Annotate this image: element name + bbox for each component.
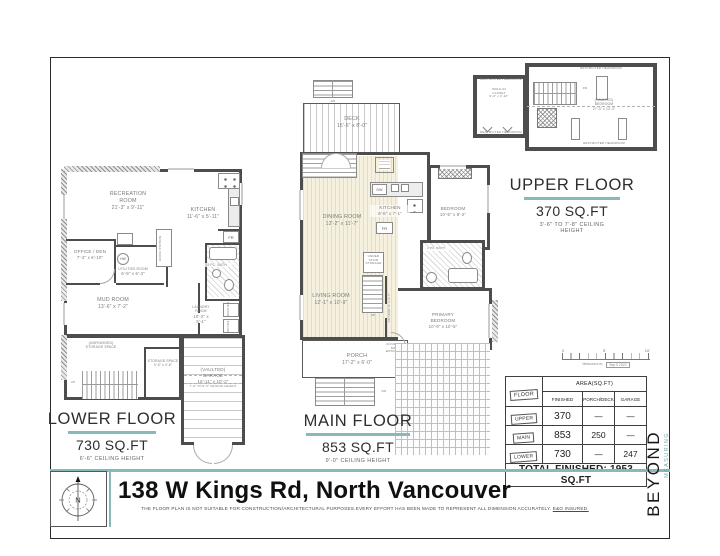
window	[485, 185, 491, 213]
room-dim: 12'-2" x 11'-7"	[312, 221, 372, 228]
fridge-label: FR	[228, 235, 233, 240]
room-dim: 13'-6" x 7'-2"	[72, 304, 154, 311]
closet	[438, 168, 472, 179]
room-label-bath: 4 PC. BATH	[202, 263, 232, 267]
room-name: DINING ROOM	[312, 214, 372, 221]
room-name: FOYER	[387, 311, 391, 322]
stairs	[82, 371, 138, 399]
finished-value: 853	[543, 426, 583, 445]
room-name: LAUNDRY ROOM	[188, 305, 214, 314]
door-swing	[214, 445, 233, 464]
wall	[198, 323, 200, 337]
floor-title-text: UPPER FLOOR	[492, 176, 652, 195]
measured-on-label: Measured on:	[582, 362, 603, 368]
room-name: PRIMARY BEDROOM	[422, 312, 464, 324]
porch-deck-header: PORCH/DECK	[583, 392, 615, 407]
scale-bar: 0 5' 10' Measured on: Sep 5 2023	[562, 348, 650, 368]
area-header-label: AREA(SQ.FT)	[576, 381, 613, 387]
label-text: DN	[583, 86, 588, 90]
room-dim: 8'-6" x 7'-1"	[370, 211, 410, 217]
brand-tagline-vertical: MEASURING	[664, 432, 670, 478]
label-text: DN	[331, 99, 336, 103]
room-label-recreation: RECREATION ROOM21'-3" x 9'-11"	[102, 191, 154, 212]
address-text: 138 W Kings Rd, North Vancouver	[118, 477, 511, 504]
wall	[144, 347, 180, 349]
toilet	[224, 279, 234, 291]
counter-appliance	[401, 184, 409, 192]
room-label-utilities: UTILITIES ROOM6'-9" x 6'-3"	[104, 267, 162, 277]
upper-annex-block	[473, 75, 527, 138]
room-label-garage: (VAULTED) GARAGE16'-11" x 10'-2"7'-0" TO…	[184, 367, 242, 388]
dishwasher-box: DW	[372, 184, 387, 195]
label-text: DN	[382, 389, 387, 393]
table-row: MAIN 853 250 —	[506, 426, 647, 445]
label-text: RESTRICTED HEADROOM	[480, 130, 522, 134]
stove-burners-icon	[218, 173, 240, 189]
garage-value: —	[615, 426, 647, 445]
porch-value: —	[583, 407, 615, 426]
restricted-headroom-label: RESTRICTED HEADROOM	[478, 131, 524, 135]
room-dim: 12'-1" x 10'-9"	[301, 300, 361, 307]
wall	[66, 239, 116, 241]
toilet	[462, 252, 472, 264]
room-dim: 27'-3" x 13'-3"	[574, 107, 634, 111]
restricted-headroom-label: RESTRICTED HEADROOM	[570, 67, 632, 71]
up-label: UP	[66, 381, 80, 385]
skylight	[618, 118, 627, 140]
label-text: DW	[377, 188, 383, 192]
title-underline	[524, 197, 620, 200]
label-text: UP	[371, 313, 376, 317]
measured-on-date: Sep 5 2023	[606, 362, 629, 368]
below-grade-wall	[61, 335, 67, 380]
label-text: RESTRICTED HEADROOM	[583, 141, 625, 145]
compass-icon: N	[51, 472, 106, 526]
below-grade-wall	[64, 166, 160, 172]
floor-title-text: MAIN FLOOR	[278, 412, 438, 431]
label-text: RESTRICTED HEADROOM	[580, 66, 622, 70]
main-floor-title: MAIN FLOOR 853 SQ.FT 9'-0" CEILING HEIGH…	[278, 412, 438, 464]
floor-ceiling-text: 3'-6" TO 7'-8" CEILING HEIGHT	[536, 222, 608, 234]
bath-sink	[426, 272, 437, 283]
room-label-kitchen: KITCHEN11'-6" x 5'-11"	[172, 207, 234, 221]
floor-area-text: 853 SQ.FT	[278, 439, 438, 455]
room-dim: 10'-2" x 5'-1"	[188, 314, 214, 325]
room-name: LIVING ROOM	[301, 293, 361, 300]
dn-label: DN	[377, 390, 391, 394]
room-dim: 21'-3" x 9'-11"	[102, 205, 154, 212]
room-dim: 9'-5" x 4'-8"	[146, 363, 180, 367]
brand-name-vertical: BEYOND	[644, 430, 664, 517]
restricted-headroom-label: RESTRICTED HEADROOM	[478, 78, 524, 82]
room-dim: 9'-0" x 3'-10"	[478, 95, 520, 99]
room-dim: 7'-2" x 6'-10"	[66, 255, 114, 261]
door-swing	[193, 445, 212, 464]
work-station-label: WORK STATION	[159, 233, 169, 263]
room-label-kitchen: KITCHEN8'-6" x 7'-1"	[370, 205, 410, 217]
room-dim: 11'-6" x 5'-11"	[172, 214, 234, 221]
upper-floor-title: UPPER FLOOR 370 SQ.FT 3'-6" TO 7'-8" CEI…	[492, 176, 652, 234]
label-text: 4 PC. BATH	[207, 263, 227, 267]
fridge-box: FR	[223, 231, 239, 243]
garage-value: —	[615, 407, 647, 426]
bath-sink	[212, 269, 221, 278]
floor-ceiling-text: 9'-0" CEILING HEIGHT	[278, 458, 438, 464]
room-name: DECK	[322, 116, 382, 123]
footer-divider	[50, 469, 670, 472]
label-text: UP	[71, 380, 76, 384]
room-name: MUD ROOM	[72, 297, 154, 304]
fridge-box: FR	[376, 222, 393, 234]
room-label-understair: UNDER STAIR STORAGE	[364, 255, 383, 266]
small-closet-box	[375, 157, 394, 173]
table-row: LOWER 730 — 247	[506, 445, 647, 464]
room-dim: 10'-9" x 10'-5"	[413, 324, 473, 330]
finished-value: 730	[543, 445, 583, 464]
measured-on-row: Measured on: Sep 5 2023	[562, 362, 650, 368]
room-label-dining: DINING ROOM12'-2" x 11'-7"	[312, 214, 372, 228]
area-header-cell: AREA(SQ.FT)	[543, 377, 647, 392]
upper-floor-plan: DN RESTRICTED HEADROOM RESTRICTED HEADRO…	[470, 60, 665, 160]
closet-box	[117, 233, 133, 245]
room-label-laundry: LAUNDRY ROOM10'-2" x 5'-1"	[188, 305, 214, 324]
room-label-porch: PORCH17'-2" x 6'-0"	[325, 353, 389, 367]
col-label: PORCH/DECK	[583, 397, 614, 402]
disclaimer: THE FLOOR PLAN IS NOT SUITABLE FOR CONST…	[135, 506, 595, 511]
label-text: 4 PC. BATH	[427, 246, 445, 250]
row-label: LOWER	[510, 451, 538, 463]
dryer-label: DRYER	[227, 320, 235, 332]
wall	[116, 283, 164, 285]
skylight	[596, 76, 608, 100]
below-grade-wall	[61, 169, 67, 301]
room-label-foyer: FOYER8'-5" x 3'-7"	[388, 285, 398, 331]
room-label-living: LIVING ROOM12'-1" x 10'-9"	[301, 293, 361, 307]
room-name: PORCH	[325, 353, 389, 360]
room-dim: 15'-6" x 8'-0"	[322, 123, 382, 130]
label-text: UNDER STAIR STORAGE	[366, 255, 382, 266]
garage-floor	[184, 338, 242, 442]
hot-water-tank: HW	[117, 253, 129, 265]
footer-accent-bar	[109, 471, 112, 527]
stair-rail	[344, 378, 345, 406]
room-label-bedroom: BEDROOM10'-5" x 8'-2"	[423, 206, 483, 218]
kitchen-sink	[230, 197, 239, 206]
room-dim: 10'-5" x 8'-2"	[423, 212, 483, 218]
floor-title-text: LOWER FLOOR	[32, 410, 192, 429]
col-label: GARAGE	[621, 397, 641, 402]
window	[168, 166, 194, 172]
up-label: UP	[365, 314, 381, 318]
finished-value: 370	[543, 407, 583, 426]
floor-ceiling-text: 6'-6" CEILING HEIGHT	[32, 456, 192, 462]
room-label-storage: STORAGE SPACE9'-5" x 4'-8"	[146, 359, 180, 367]
room-note: 7'-0" TO 9'-2" CEILING HEIGHT	[184, 385, 242, 389]
compass-n-label: N	[75, 496, 80, 505]
porch-stairs	[315, 378, 375, 406]
floor-area-text: 730 SQ.FT	[32, 437, 192, 453]
window	[297, 295, 303, 320]
floor-header-cell: FLOOR	[506, 377, 543, 407]
room-label-main-bath: 4 PC. BATH	[423, 247, 449, 251]
stair-rail	[82, 384, 138, 385]
stairs	[362, 275, 383, 313]
chimney	[537, 108, 557, 128]
window	[486, 304, 492, 338]
title-underline	[68, 431, 156, 434]
washer-label: WASHER	[227, 304, 235, 316]
title-underline	[306, 433, 410, 436]
label-text: (UNFINISHED) STORAGE SPACE	[84, 341, 118, 350]
row-label: MAIN	[513, 432, 535, 443]
finished-header: FINISHED	[543, 392, 583, 407]
floor-header-label: FLOOR	[510, 389, 539, 401]
row-label-cell: MAIN	[506, 426, 543, 445]
col-label: FINISHED	[552, 397, 573, 402]
window	[61, 195, 67, 219]
window	[440, 163, 466, 169]
disclaimer-underlined-text: E&O INSURED.	[553, 506, 589, 511]
skylight	[571, 118, 580, 140]
room-name: (VAULTED) BEDROOM	[588, 98, 620, 107]
wall	[66, 283, 100, 285]
room-name: KITCHEN	[172, 207, 234, 214]
room-name: RECREATION ROOM	[102, 191, 154, 205]
garage-header: GARAGE	[615, 392, 647, 407]
room-label-walkin-closet: WALK-IN CLOSET9'-0" x 3'-10"	[478, 88, 520, 99]
bay-window	[492, 300, 498, 342]
room-label-mud: MUD ROOM13'-6" x 7'-2"	[72, 297, 154, 311]
lower-floor-title: LOWER FLOOR 730 SQ.FT 6'-6" CEILING HEIG…	[32, 410, 192, 462]
room-dim: 8'-5" x 3'-7"	[387, 294, 391, 312]
label-text: FR	[382, 226, 387, 231]
label-text: WASHER	[226, 302, 230, 316]
stair-rail	[533, 93, 577, 94]
address-title: 138 W Kings Rd, North Vancouver	[118, 477, 511, 505]
counter-appliance	[391, 184, 399, 192]
room-label-deck: DECK15'-6" x 8'-0"	[322, 116, 382, 130]
label-text: DRYER	[226, 320, 230, 332]
window	[61, 303, 67, 325]
wall	[144, 347, 146, 400]
brand-logo: BEYOND MEASURING	[644, 430, 670, 536]
total-finished-label: TOTAL FINISHED: 1953 SQ.FT	[519, 464, 633, 486]
row-label-cell: LOWER	[506, 445, 543, 464]
garage-value: 247	[615, 445, 647, 464]
table-row: UPPER 370 — —	[506, 407, 647, 426]
room-dim: 6'-9" x 6'-3"	[104, 271, 162, 276]
total-finished-cell: TOTAL FINISHED: 1953 SQ.FT	[506, 464, 647, 487]
dn-label: DN	[578, 87, 592, 91]
room-label-vaulted-bedroom: (VAULTED) BEDROOM27'-3" x 13'-3"	[574, 98, 634, 111]
room-name: (VAULTED) GARAGE	[196, 367, 230, 379]
label-text: HW	[120, 257, 126, 261]
compass-box: N	[50, 471, 107, 527]
room-dim: 17'-2" x 6'-0"	[325, 360, 389, 367]
scale-ruler	[562, 353, 650, 360]
stair-rail	[332, 80, 333, 98]
window	[297, 190, 303, 220]
room-label-unfinished-storage: (UNFINISHED) STORAGE SPACE	[70, 341, 132, 350]
wall	[205, 299, 240, 301]
porch-value: —	[583, 445, 615, 464]
deck-stairs	[313, 80, 353, 98]
floor-area-text: 370 SQ.FT	[492, 203, 652, 219]
label-text: RESTRICTED HEADROOM	[480, 77, 522, 81]
row-label-cell: UPPER	[506, 407, 543, 426]
room-label-primary: PRIMARY BEDROOM10'-9" x 10'-5"	[413, 312, 473, 330]
room-label-office: OFFICE / DEN7'-2" x 6'-10"	[66, 249, 114, 261]
bathtub	[209, 247, 237, 260]
disclaimer-text: THE FLOOR PLAN IS NOT SUITABLE FOR CONST…	[141, 506, 553, 511]
floor-plan-page: FR WORK STATION 4 PC. BATH WASHER DRYER …	[0, 0, 720, 556]
label-text: WORK STATION	[158, 235, 162, 260]
row-label: UPPER	[511, 413, 538, 425]
porch-value: 250	[583, 426, 615, 445]
restricted-headroom-label: RESTRICTED HEADROOM	[573, 142, 635, 146]
bathtub	[448, 268, 478, 283]
